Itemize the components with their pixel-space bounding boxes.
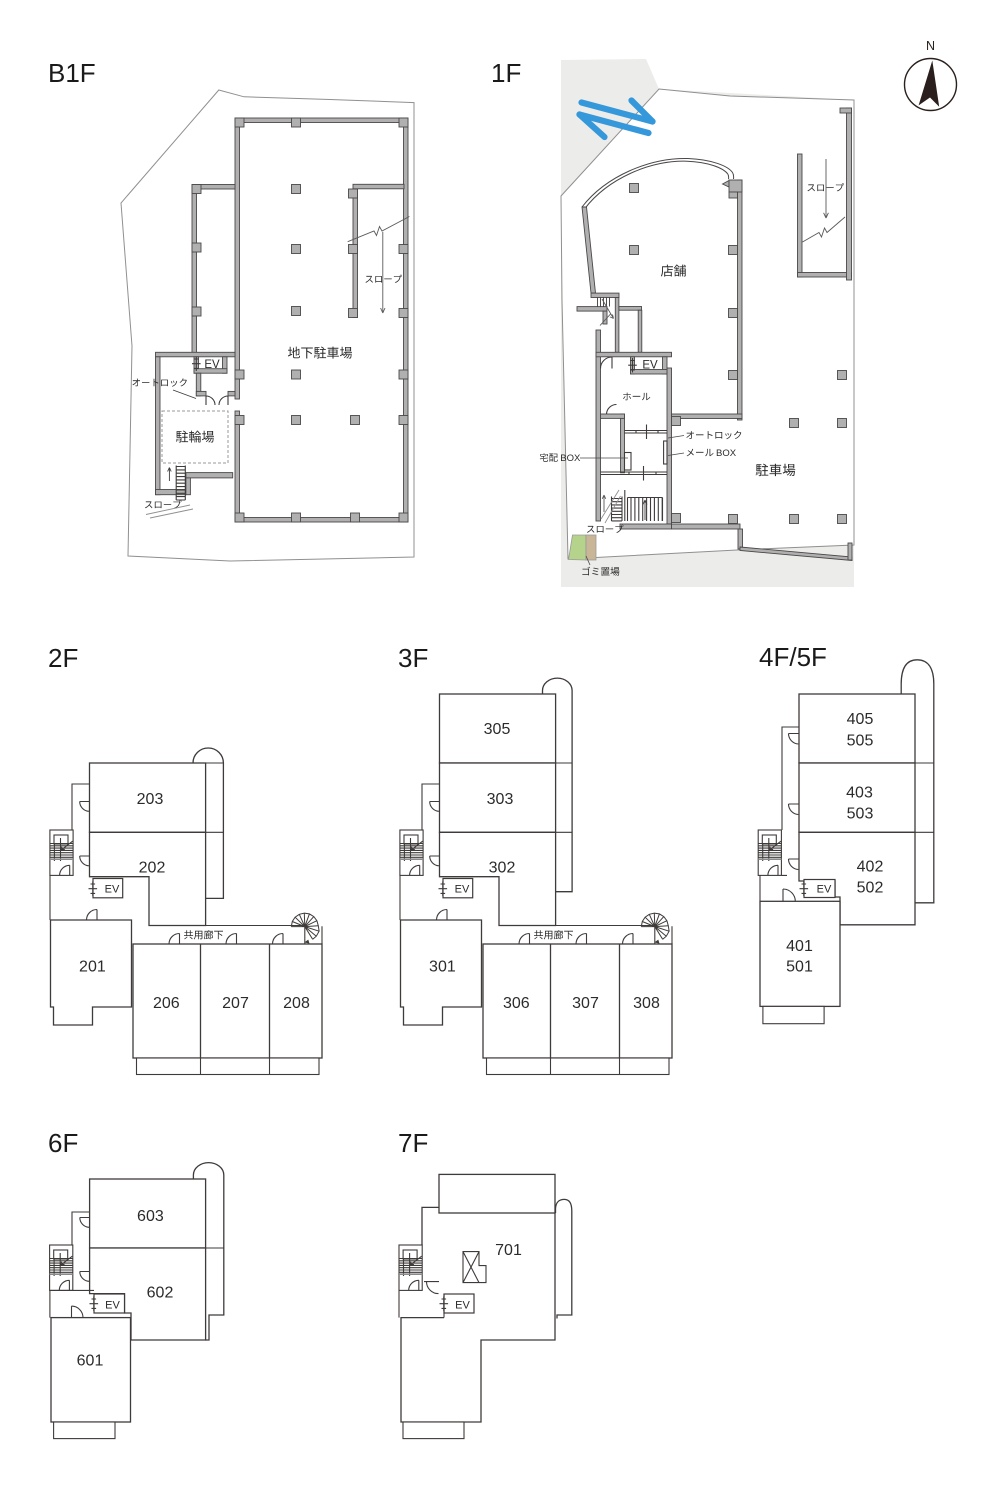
svg-text:206: 206 [153,995,180,1012]
svg-text:602: 602 [147,1285,174,1302]
svg-text:208: 208 [283,995,310,1012]
svg-text:401: 401 [786,938,813,955]
svg-text:403: 403 [846,785,873,802]
svg-text:303: 303 [487,791,514,808]
svg-text:505: 505 [847,733,874,750]
svg-text:203: 203 [137,791,164,808]
svg-text:6F: 6F [48,1128,78,1158]
svg-text:1F: 1F [491,58,521,88]
svg-text:4F/5F: 4F/5F [759,642,827,672]
svg-text:202: 202 [139,860,166,877]
svg-text:308: 308 [633,995,660,1012]
svg-text:7F: 7F [398,1128,428,1158]
svg-text:301: 301 [429,959,456,976]
svg-text:306: 306 [503,995,530,1012]
svg-text:405: 405 [847,711,874,728]
svg-text:EV: EV [642,360,658,372]
svg-text:603: 603 [137,1208,164,1225]
svg-text:502: 502 [857,880,884,897]
svg-text:501: 501 [786,959,813,976]
svg-text:305: 305 [484,721,511,738]
svg-text:207: 207 [222,995,249,1012]
svg-text:503: 503 [847,806,874,823]
svg-text:3F: 3F [398,643,428,673]
svg-text:BOX: BOX [560,453,581,464]
svg-text:B1F: B1F [48,58,96,88]
svg-text:307: 307 [572,995,599,1012]
svg-text:302: 302 [489,860,516,877]
svg-text:601: 601 [77,1353,104,1370]
svg-text:EV: EV [817,884,832,896]
svg-text:201: 201 [79,959,106,976]
svg-text:2F: 2F [48,643,78,673]
svg-text:EV: EV [455,884,470,896]
svg-text:BOX: BOX [716,448,737,459]
svg-text:EV: EV [105,1299,120,1311]
svg-text:EV: EV [204,359,220,371]
svg-text:EV: EV [455,1299,470,1311]
svg-text:N: N [926,39,935,53]
svg-text:402: 402 [857,859,884,876]
svg-text:EV: EV [105,884,120,896]
svg-text:701: 701 [495,1242,522,1259]
